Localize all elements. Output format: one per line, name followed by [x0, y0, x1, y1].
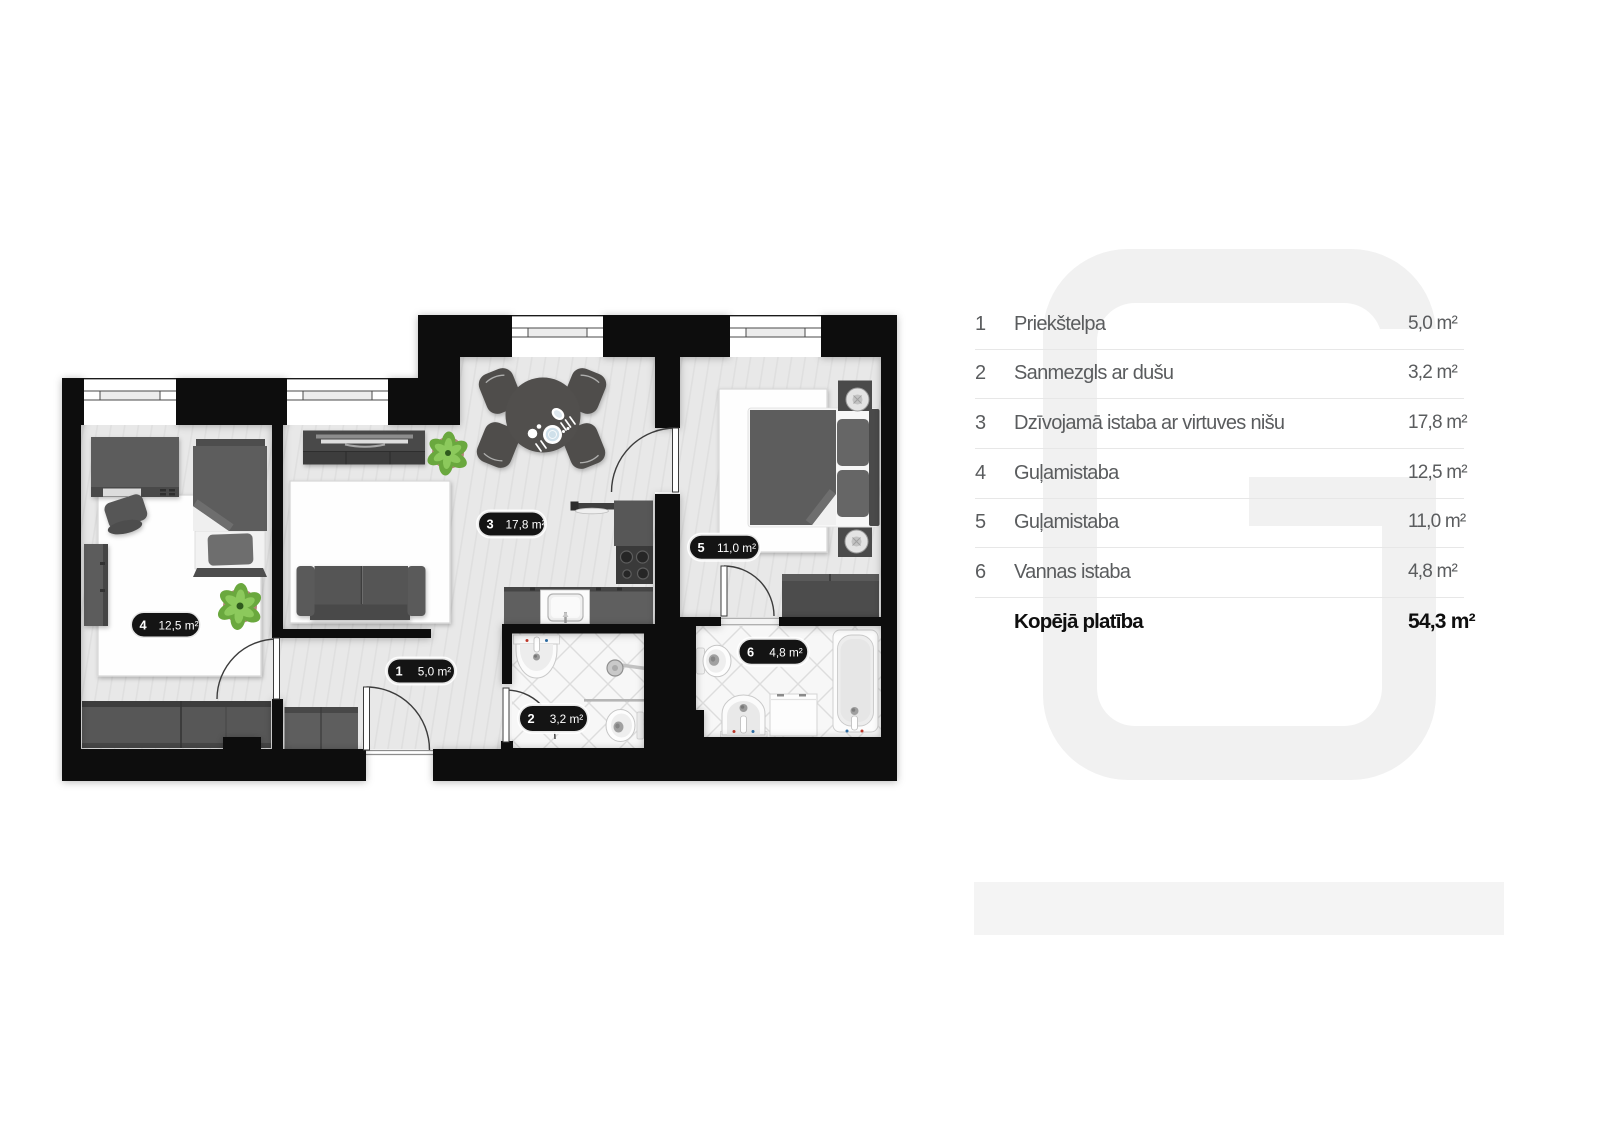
svg-text:5,0 m²: 5,0 m²	[418, 665, 452, 679]
svg-text:4: 4	[139, 617, 147, 632]
svg-text:17,8 m²: 17,8 m²	[506, 518, 546, 532]
svg-text:6: 6	[747, 644, 754, 659]
svg-text:2: 2	[527, 711, 534, 726]
svg-text:12,5 m²: 12,5 m²	[159, 618, 199, 632]
svg-text:11,0 m²: 11,0 m²	[717, 541, 756, 555]
svg-text:5: 5	[697, 540, 704, 555]
svg-text:1: 1	[395, 664, 402, 679]
svg-text:4,8 m²: 4,8 m²	[769, 645, 803, 659]
svg-text:3: 3	[486, 517, 493, 532]
svg-text:3,2 m²: 3,2 m²	[550, 712, 584, 726]
